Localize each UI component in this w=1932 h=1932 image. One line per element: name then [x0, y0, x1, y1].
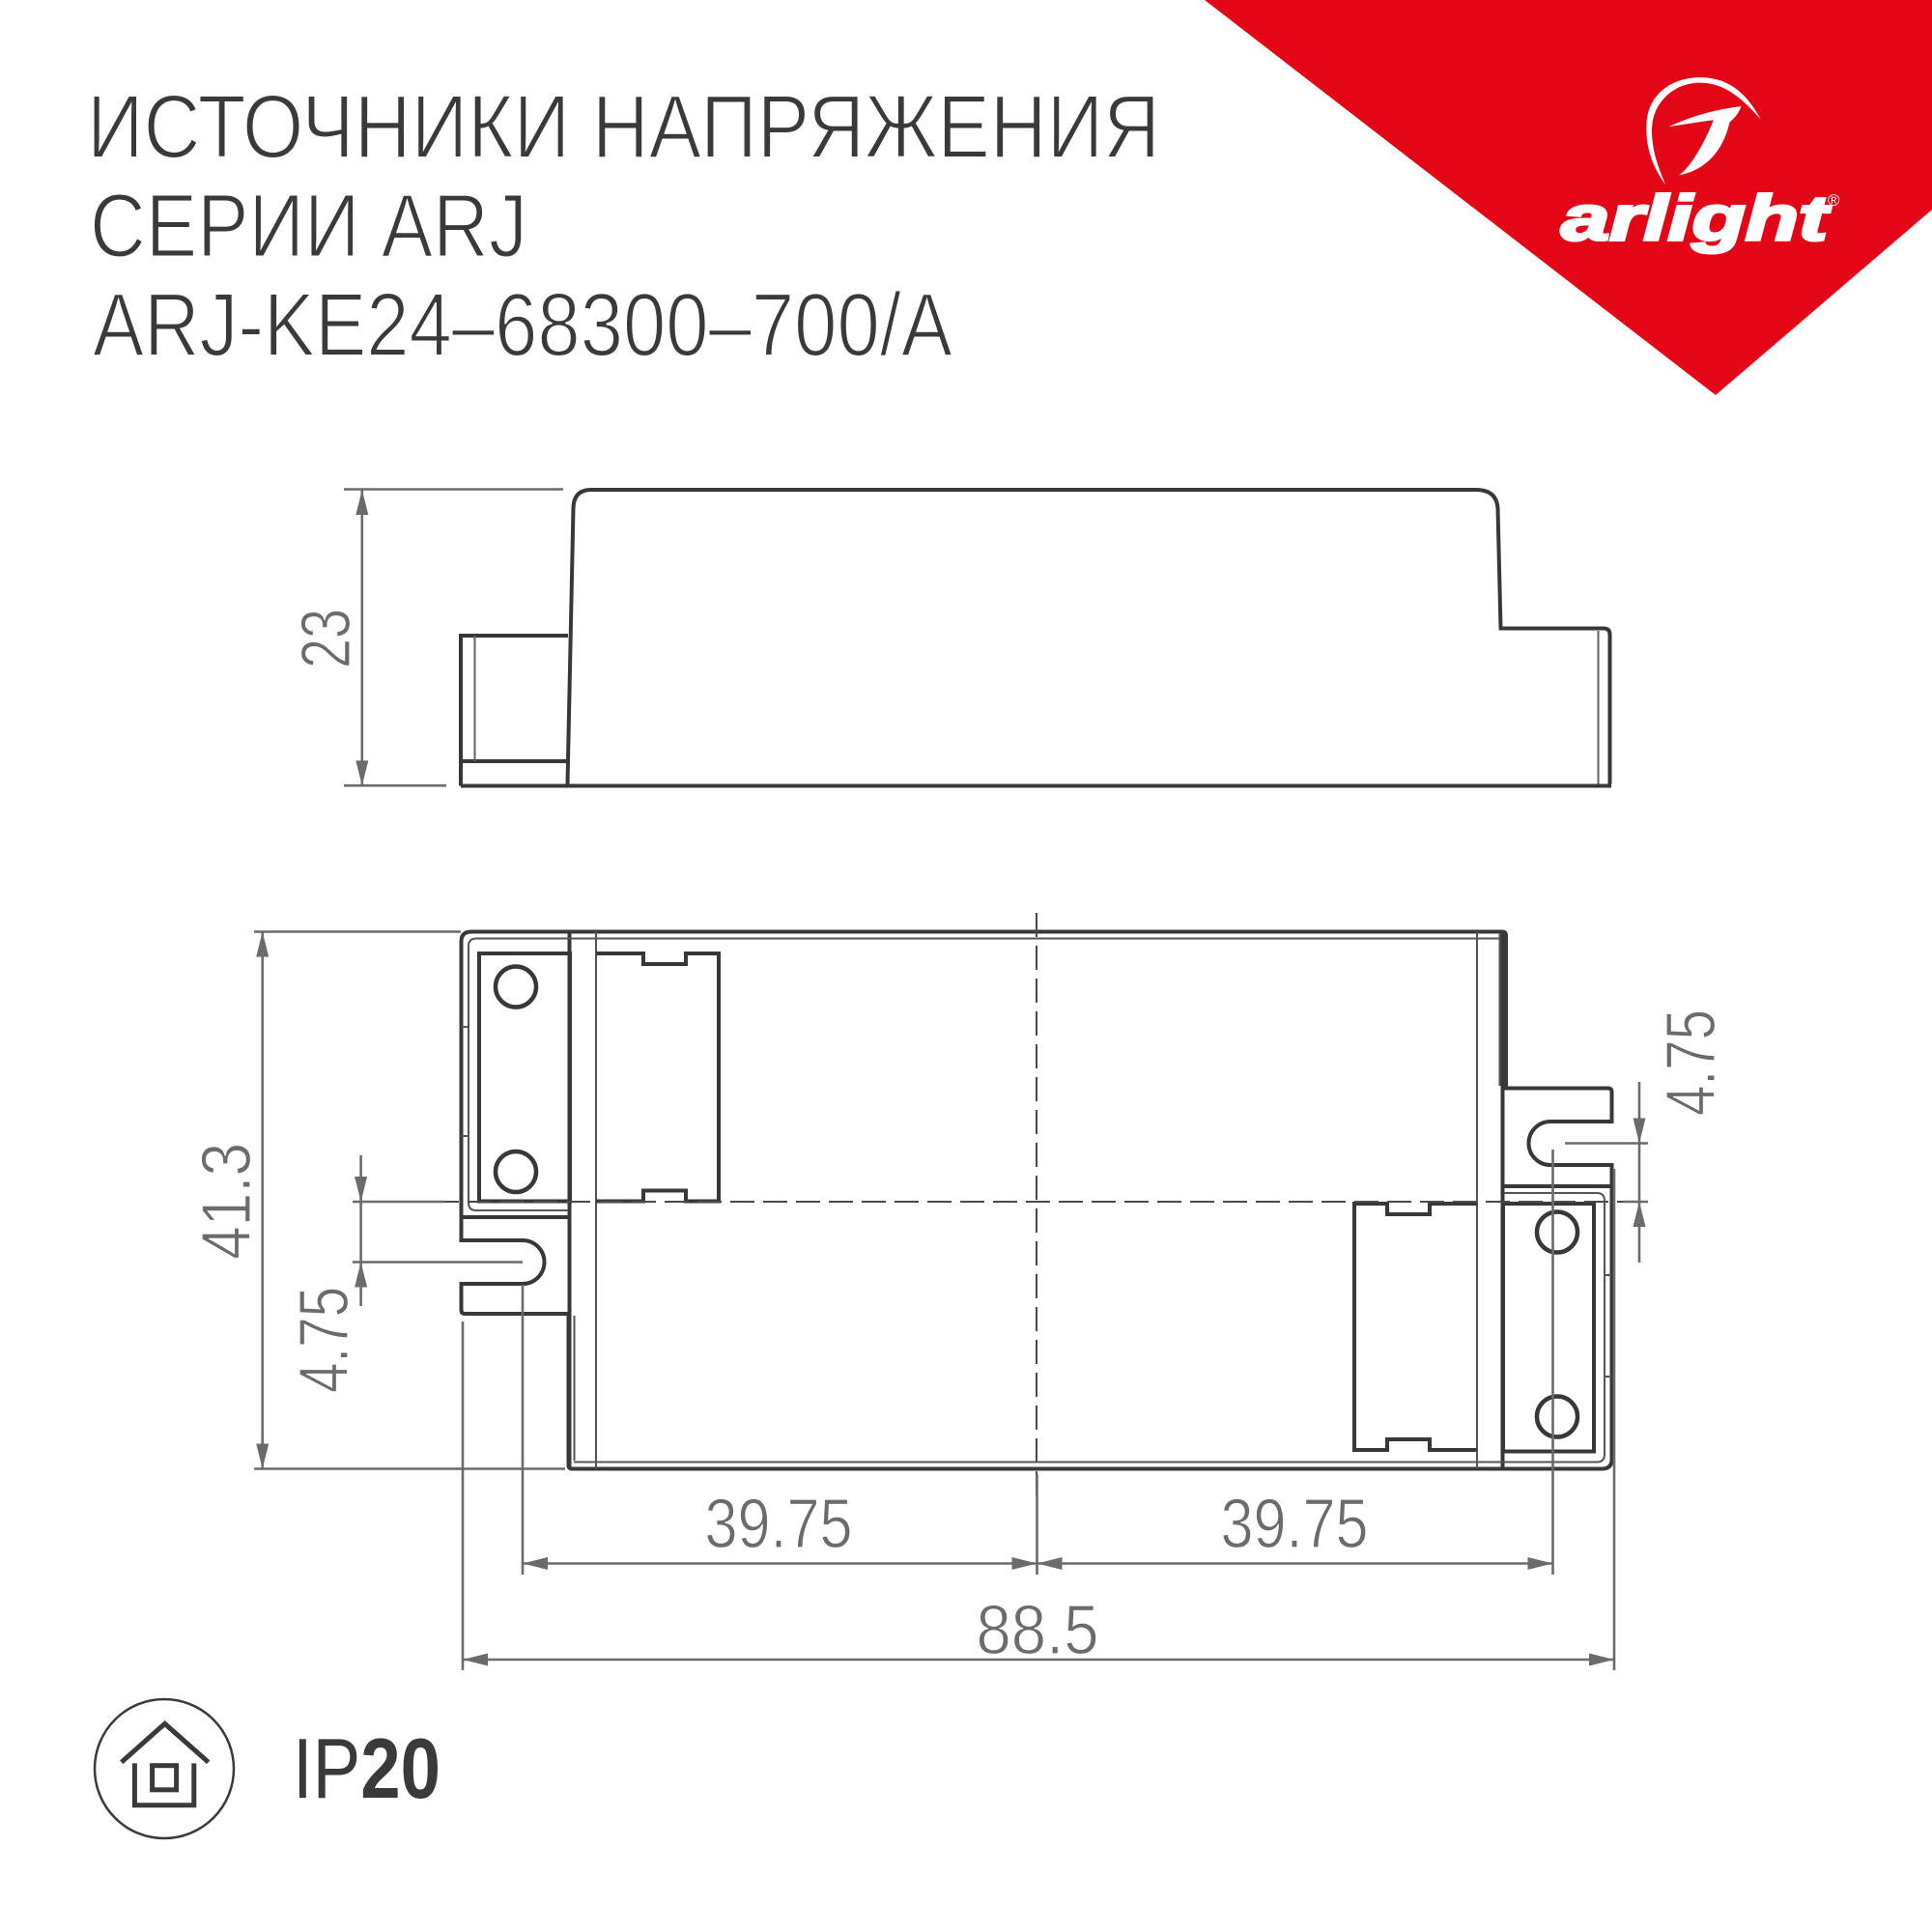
svg-text:IP20: IP20	[293, 1720, 440, 1816]
svg-text:39.75: 39.75	[1221, 1486, 1369, 1563]
svg-text:4.75: 4.75	[286, 1287, 363, 1393]
svg-text:®: ®	[1828, 191, 1840, 210]
svg-text:23: 23	[288, 609, 365, 668]
svg-text:39.75: 39.75	[705, 1486, 853, 1563]
svg-text:СЕРИИ ARJ: СЕРИИ ARJ	[90, 176, 527, 276]
svg-text:4.75: 4.75	[1653, 1009, 1730, 1116]
svg-text:ARJ-KE24–68300–700/А: ARJ-KE24–68300–700/А	[93, 274, 952, 375]
svg-text:arlight: arlight	[1561, 183, 1832, 254]
svg-text:41.3: 41.3	[188, 1143, 266, 1260]
svg-text:ИСТОЧНИКИ НАПРЯЖЕНИЯ: ИСТОЧНИКИ НАПРЯЖЕНИЯ	[87, 76, 1160, 177]
svg-text:88.5: 88.5	[977, 1592, 1099, 1669]
